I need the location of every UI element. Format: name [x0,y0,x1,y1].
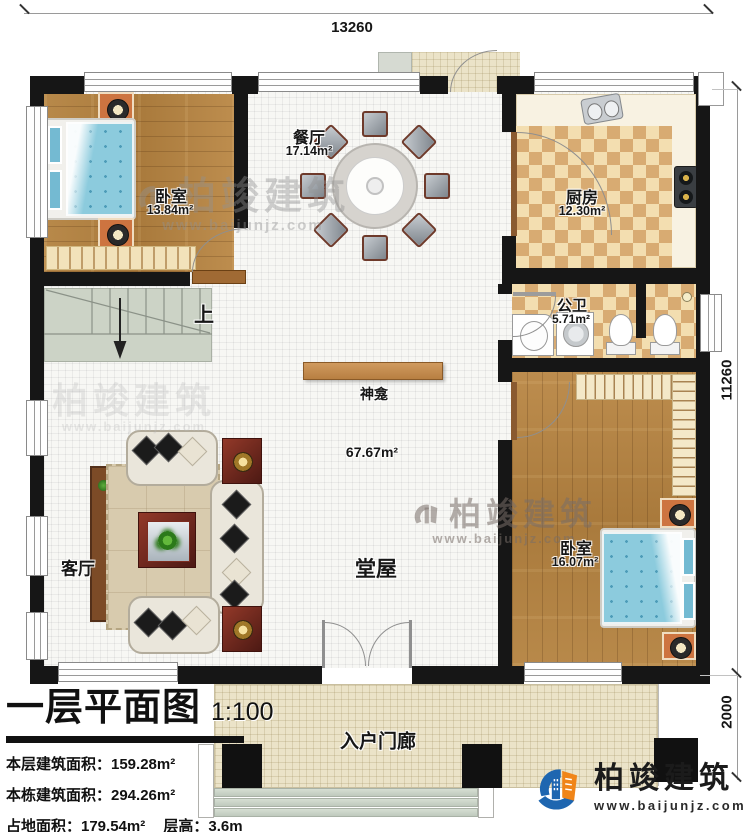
lamp-icon [670,637,692,659]
building-area-line: 本栋建筑面积：294.26m² [6,784,336,805]
dimension-height: 11260 [719,360,736,401]
wall [232,76,258,94]
dimension-width: 13260 [331,19,373,36]
brand-website: www.baijunjz.com [594,798,746,813]
plan-title: 一层平面图 [6,676,201,731]
title-block: 一层平面图 1:100 本层建筑面积：159.28m² 本栋建筑面积：294.2… [6,676,336,832]
extension-line [700,675,738,676]
room-area-kitchen: 12.30m² [559,204,606,218]
label-entry-porch: 入户门廊 [340,727,416,754]
extension-line [712,89,738,90]
wall [30,76,44,106]
wall [30,272,190,286]
coffee-table [138,512,196,568]
wall [30,576,44,612]
wall [498,440,512,668]
bed-sheet [66,122,100,216]
side-table [222,606,262,652]
title-underline [6,736,244,743]
nightstand [660,498,696,528]
window [26,400,48,456]
pillow [48,126,62,164]
window [26,516,48,576]
lamp-icon [233,452,253,472]
dimension-line-top [24,13,712,14]
bedroom1-bench [46,246,196,270]
wall [502,94,516,132]
lamp-icon [233,620,253,640]
window [258,72,420,92]
floor-plan-drawing: 13260 11260 2000 柏竣建筑 www.baijunjz.com 柏… [0,0,750,832]
brand-logo-icon [534,760,586,816]
brand-company: 柏竣建筑 [594,764,746,794]
room-area-bedroom2: 16.07m² [552,555,599,569]
dining-chair [424,173,450,199]
wall [696,76,710,668]
burner-icon [679,190,693,204]
room-area-dining: 17.14m² [286,144,333,158]
sink-bowl [586,102,604,121]
lamp-icon [107,224,129,246]
wall [30,456,44,516]
room-area-bathroom: 5.71m² [552,312,590,326]
room-area-bedroom1: 13.84m² [147,203,194,217]
brand-logo: 柏竣建筑 www.baijunjz.com [534,760,746,816]
wall [498,358,710,372]
room-area-hall: 67.67m² [346,444,398,460]
room-label-living: 客厅 [61,555,95,580]
plan-scale: 1:100 [211,698,274,727]
wall [636,284,646,338]
room-label-hall: 堂屋 [355,553,397,583]
side-table [222,438,262,484]
wall [502,268,710,284]
window [534,72,694,92]
wardrobe-rail [576,374,676,400]
window [84,72,232,92]
plant-icon [158,531,177,550]
dining-chair [362,111,388,137]
wall [622,666,710,684]
nightstand [98,218,134,248]
wall [234,94,248,228]
window [700,294,722,352]
wall [497,76,534,94]
burner-icon [679,171,693,185]
floor-height-text: 层高：3.6m [163,818,242,832]
wall [498,284,512,294]
wall [30,238,44,400]
stove [674,166,698,208]
door-leaf [192,270,246,284]
dining-chair [300,173,326,199]
window [26,106,48,238]
toilet [653,314,677,346]
floor-area-line: 本层建筑面积：159.28m² [6,753,336,774]
lamp-icon [669,504,691,526]
pillow [682,538,695,576]
stairs-treads [44,288,212,362]
toilet [609,314,633,346]
wall [502,236,516,268]
shrine-shelf [303,362,443,380]
bed-sheet [648,532,682,624]
label-stairs-up: 上 [194,299,214,328]
dimension-porch-depth: 2000 [719,695,736,728]
dining-chair [362,235,388,261]
lazy-susan [366,177,384,195]
window [26,612,48,660]
land-area-text: 占地面积：179.54m² [6,818,145,832]
land-area-line: 占地面积：179.54m² 层高：3.6m [6,815,336,832]
window [524,662,622,682]
wall [420,76,448,94]
pillow [682,582,695,620]
wall [412,666,524,684]
door-leaf [409,620,412,668]
label-shrine: 神龛 [360,384,388,404]
wardrobe-rail [672,374,696,496]
sink-bowl [603,99,621,118]
porch-column [462,744,502,788]
pillow [48,170,62,210]
wall-lamp-icon [682,292,692,302]
nightstand [662,632,696,660]
